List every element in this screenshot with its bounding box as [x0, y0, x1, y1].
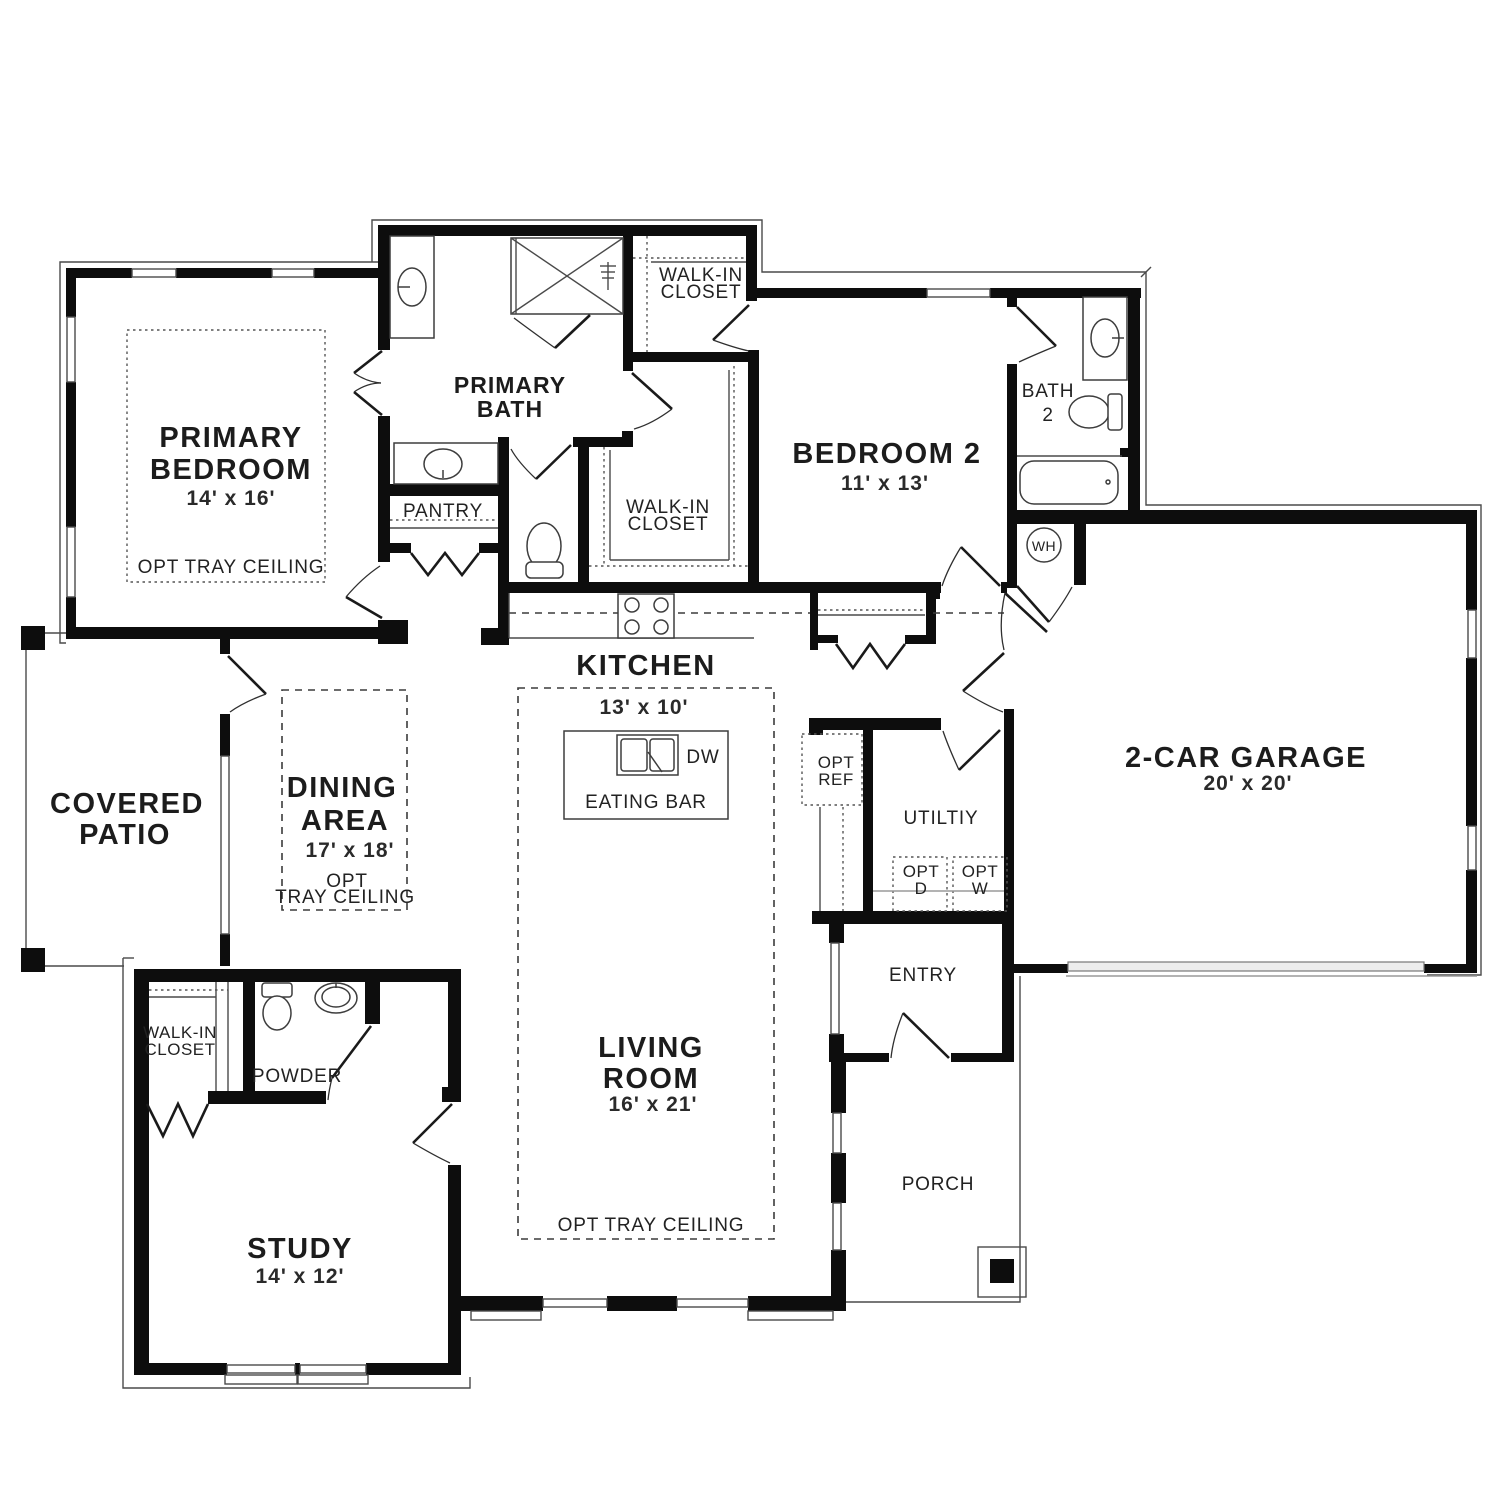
svg-text:16' x 21': 16' x 21': [608, 1093, 697, 1116]
svg-text:BEDROOM: BEDROOM: [150, 454, 312, 486]
svg-text:PANTRY: PANTRY: [403, 501, 483, 522]
svg-text:2-CAR GARAGE: 2-CAR GARAGE: [1125, 742, 1367, 774]
svg-text:DW: DW: [686, 747, 719, 768]
svg-text:14' x 16': 14' x 16': [186, 487, 275, 510]
svg-text:PRIMARY: PRIMARY: [454, 372, 566, 398]
svg-text:PATIO: PATIO: [79, 819, 171, 851]
svg-text:AREA: AREA: [301, 805, 389, 837]
svg-text:BEDROOM 2: BEDROOM 2: [792, 438, 981, 470]
svg-text:20' x 20': 20' x 20': [1203, 772, 1292, 795]
svg-text:WH: WH: [1032, 538, 1056, 554]
svg-text:BATH: BATH: [1022, 381, 1074, 402]
svg-text:CLOSET: CLOSET: [628, 514, 709, 535]
svg-text:OPT TRAY CEILING: OPT TRAY CEILING: [558, 1215, 745, 1236]
svg-text:STUDY: STUDY: [247, 1233, 353, 1265]
svg-text:OPT TRAY CEILING: OPT TRAY CEILING: [138, 557, 325, 578]
svg-text:PRIMARY: PRIMARY: [159, 422, 302, 454]
svg-text:LIVING: LIVING: [598, 1032, 704, 1064]
svg-text:13' x 10': 13' x 10': [599, 696, 688, 719]
svg-text:EATING BAR: EATING BAR: [585, 792, 707, 813]
svg-text:TRAY CEILING: TRAY CEILING: [275, 887, 415, 908]
svg-text:ENTRY: ENTRY: [889, 965, 957, 986]
svg-text:DINING: DINING: [287, 772, 398, 804]
svg-text:11' x 13': 11' x 13': [841, 472, 929, 495]
svg-text:2: 2: [1042, 405, 1053, 426]
svg-text:PORCH: PORCH: [902, 1174, 975, 1195]
svg-text:14' x 12': 14' x 12': [255, 1265, 344, 1288]
svg-text:ROOM: ROOM: [603, 1063, 699, 1095]
svg-text:COVERED: COVERED: [50, 788, 204, 820]
svg-text:CLOSET: CLOSET: [661, 282, 742, 303]
svg-text:17' x 18': 17' x 18': [305, 839, 394, 862]
svg-text:W: W: [972, 879, 989, 898]
svg-text:D: D: [915, 879, 928, 898]
svg-text:POWDER: POWDER: [252, 1066, 342, 1087]
svg-text:CLOSET: CLOSET: [144, 1040, 215, 1059]
svg-text:BATH: BATH: [477, 396, 543, 422]
svg-text:KITCHEN: KITCHEN: [576, 650, 715, 682]
svg-text:REF: REF: [818, 770, 854, 789]
svg-text:UTILTIY: UTILTIY: [904, 808, 979, 829]
